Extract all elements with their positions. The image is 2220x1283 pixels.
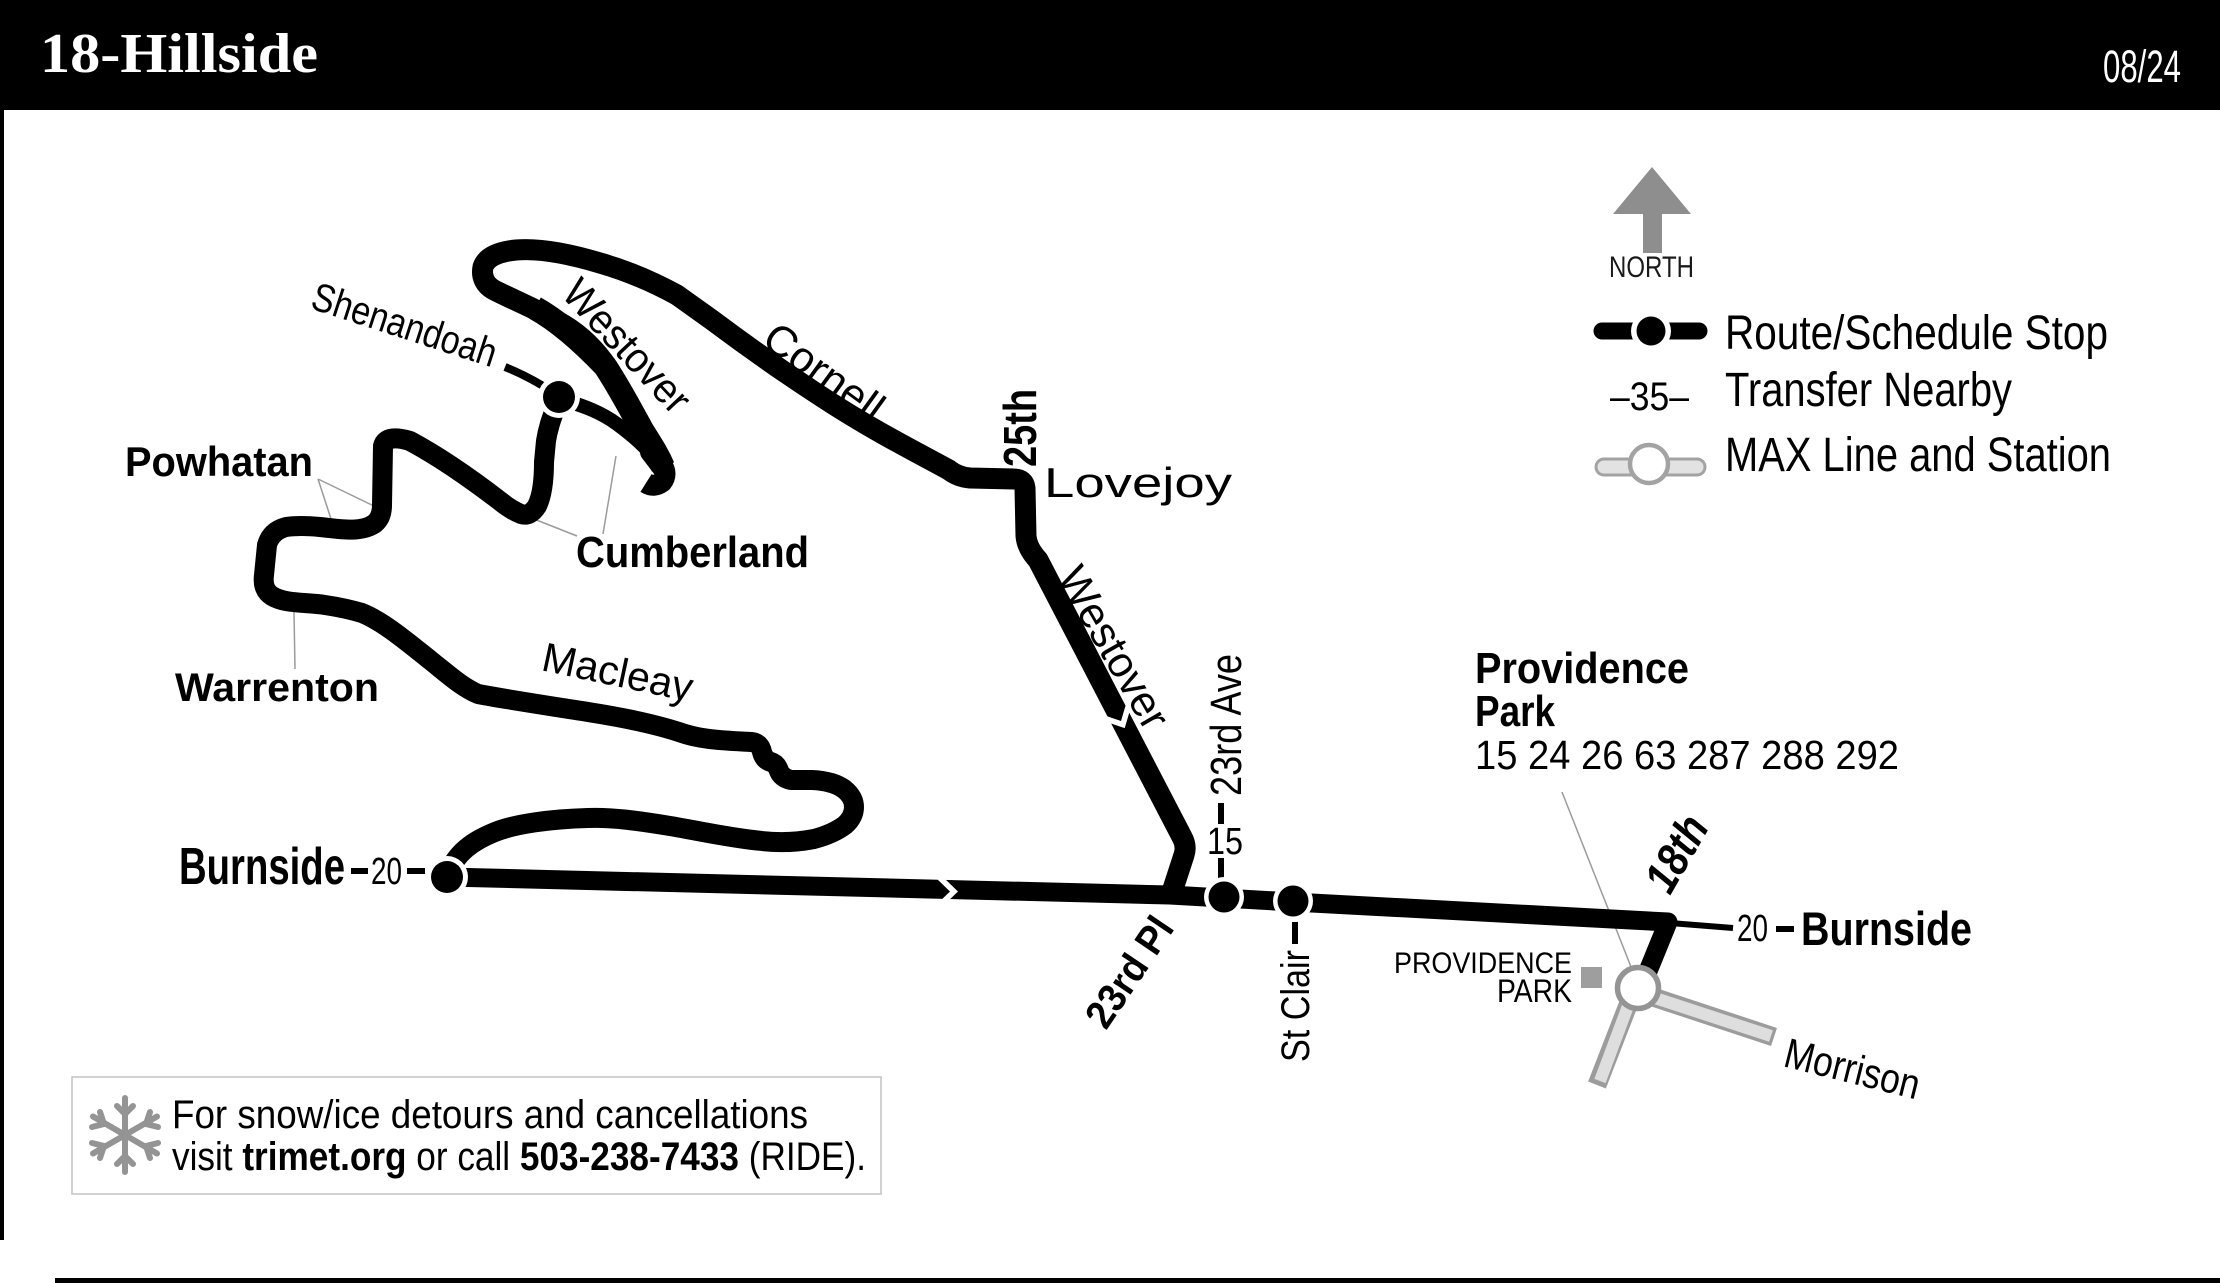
svg-text:08/24: 08/24: [2103, 41, 2181, 92]
svg-text:15: 15: [1207, 821, 1243, 863]
svg-text:St Clair: St Clair: [1274, 950, 1318, 1062]
svg-text:Route/Schedule Stop: Route/Schedule Stop: [1725, 307, 2108, 360]
svg-text:20: 20: [371, 851, 402, 893]
svg-text:Burnside: Burnside: [179, 838, 345, 896]
svg-text:Park: Park: [1475, 687, 1555, 736]
svg-text:20: 20: [1737, 908, 1768, 950]
svg-text:18-Hillside: 18-Hillside: [40, 23, 318, 85]
svg-text:MAX Line and Station: MAX Line and Station: [1725, 429, 2111, 482]
svg-text:Lovejoy: Lovejoy: [1044, 459, 1232, 506]
svg-text:Warrenton: Warrenton: [175, 666, 379, 710]
svg-text:15 24 26 63 287 288 292: 15 24 26 63 287 288 292: [1475, 732, 1899, 778]
svg-text:25th: 25th: [994, 389, 1046, 467]
svg-text:Powhatan: Powhatan: [125, 438, 313, 485]
svg-text:23rd Ave: 23rd Ave: [1202, 654, 1251, 796]
svg-text:Burnside: Burnside: [1801, 902, 1972, 955]
svg-text:For snow/ice detours and cance: For snow/ice detours and cancellations: [172, 1093, 808, 1137]
svg-text:Transfer Nearby: Transfer Nearby: [1725, 364, 2012, 417]
svg-text:visit trimet.org or call 503-2: visit trimet.org or call 503-238-7433 (R…: [172, 1135, 866, 1179]
svg-text:Providence: Providence: [1475, 644, 1689, 693]
svg-text:NORTH: NORTH: [1609, 251, 1694, 284]
svg-text:PARK: PARK: [1497, 973, 1572, 1009]
svg-text:Cumberland: Cumberland: [576, 528, 809, 577]
svg-text:–35–: –35–: [1610, 375, 1690, 419]
